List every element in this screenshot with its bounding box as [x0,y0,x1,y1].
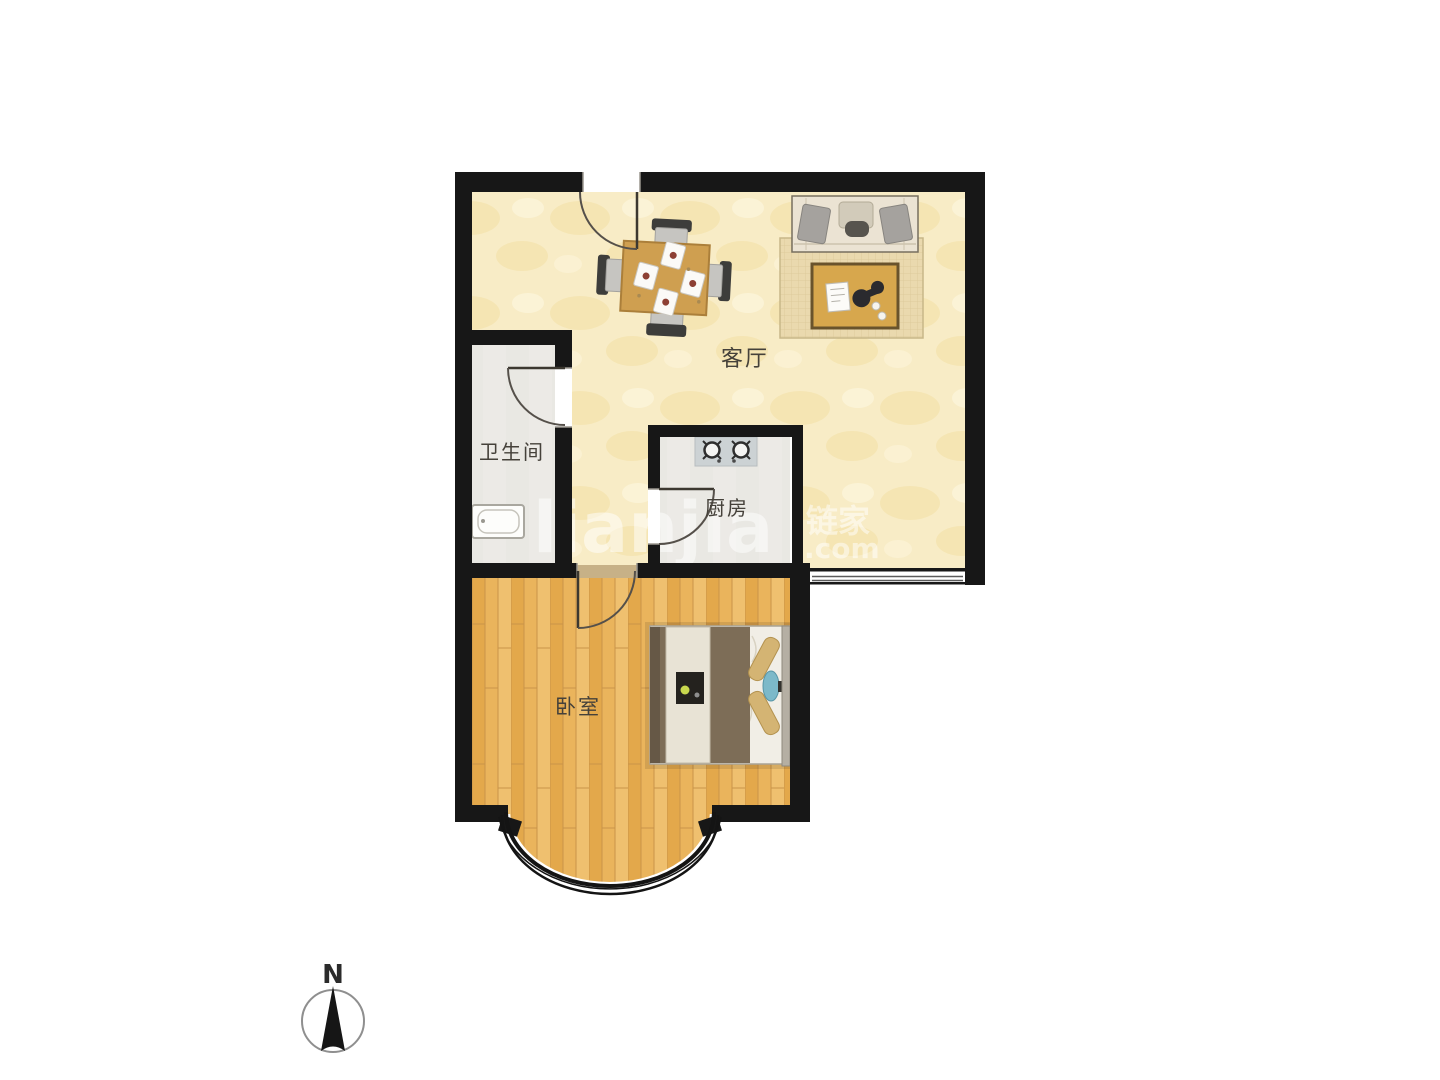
wall-kitchen-right [792,425,803,565]
wall-top-left [455,172,583,192]
wall-right [965,172,985,585]
wall-bedroom-right [790,563,810,822]
sofa-icon [792,196,918,252]
wall-bedroom-bottom-right [712,805,810,822]
wall-middle-right [637,563,810,578]
living-room-label: 客厅 [721,347,769,372]
compass-icon: N [302,960,364,1052]
wall-bathroom-top [455,330,572,345]
wall-bathroom-right-upper [555,330,572,368]
wall-kitchen-left-lower [648,544,660,565]
bed-tray-icon [676,672,704,704]
bedroom-label: 卧室 [555,695,601,719]
living-room-window-icon [810,568,965,585]
floor-plan: lianjia 链家 .com [0,0,1440,1080]
wall-left [455,172,472,822]
floor-plan-page: lianjia 链家 .com [0,0,1440,1080]
wall-kitchen-left-upper [648,437,660,489]
wall-top-right [640,172,985,192]
compass-needle [321,986,345,1051]
kitchen-label: 厨房 [705,496,749,520]
bathroom-label: 卫生间 [479,440,545,464]
watermark-suffix: .com [804,532,880,565]
bathtub-icon [472,505,524,538]
stove-icon [695,437,757,466]
wall-kitchen-top [648,425,803,437]
wall-bathroom-right-lower [555,427,572,578]
bed-icon [645,622,793,769]
coffee-table-icon [812,264,898,328]
compass-north-label: N [322,960,344,990]
wall-middle-left [455,563,577,578]
